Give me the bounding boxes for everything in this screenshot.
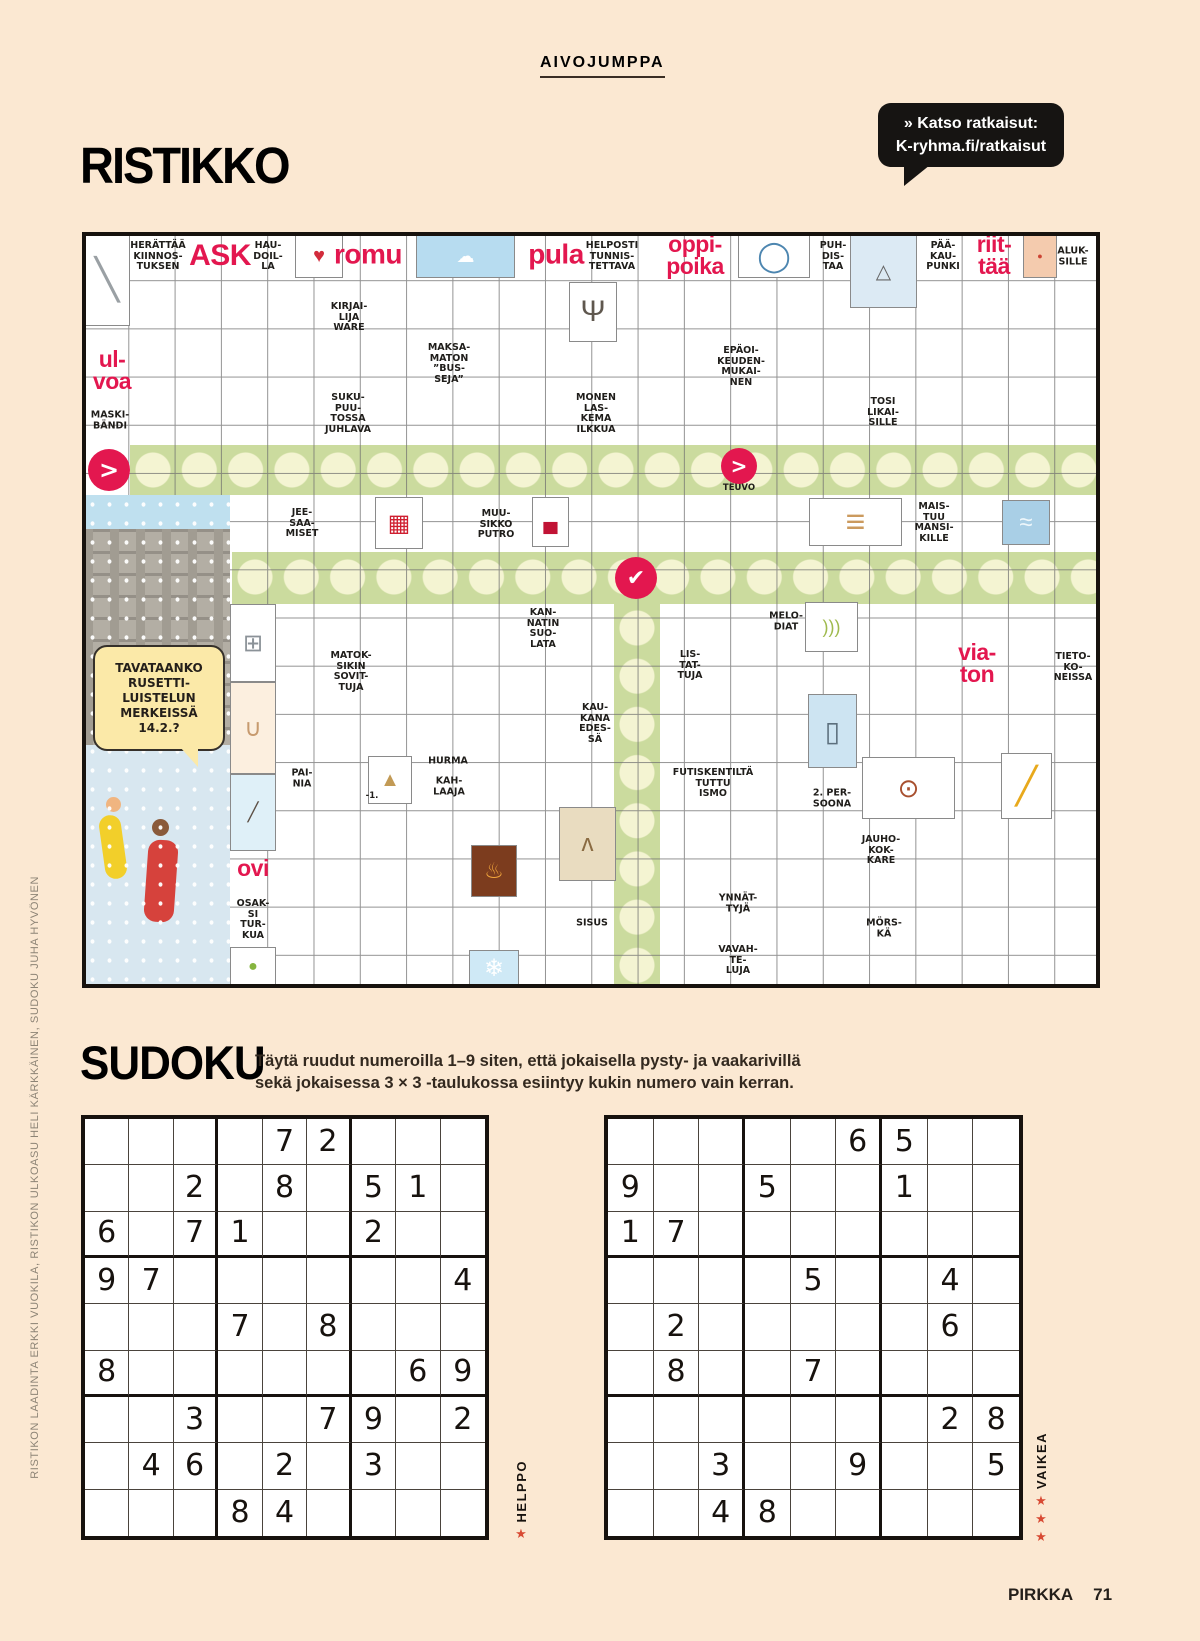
sea-image: ≈: [1002, 500, 1050, 545]
solutions-line1: » Katso ratkaisut:: [904, 112, 1038, 135]
sudoku-cell: [174, 1351, 218, 1397]
bananas-image: ))): [805, 602, 858, 652]
climbers-image: △: [850, 234, 917, 308]
fireplace-image: ♨: [471, 845, 517, 897]
sudoku-cell: [791, 1397, 837, 1443]
sudoku-cell: [352, 1258, 396, 1304]
sudoku-cell: [928, 1351, 974, 1397]
sudoku-cell: 2: [263, 1443, 307, 1489]
solutions-line2: K-ryhma.fi/ratkaisut: [896, 135, 1046, 158]
crossword-clue-red: ASK: [189, 242, 251, 271]
sudoku-cell: 9: [836, 1443, 882, 1489]
sudoku-cell: [608, 1397, 654, 1443]
crossword-clue: MELO- DIAT: [769, 611, 803, 632]
sudoku-cell: 2: [441, 1397, 485, 1443]
sudoku-instructions-line1: Täytä ruudut numeroilla 1–9 siten, että …: [255, 1050, 801, 1072]
sudoku-cell: 4: [129, 1443, 173, 1489]
sudoku-cell: [699, 1304, 745, 1350]
sudoku-cell: 5: [882, 1119, 928, 1165]
sudoku-cell: [441, 1490, 485, 1536]
tower-image: ▯: [808, 694, 857, 768]
sudoku-cell: [745, 1304, 791, 1350]
sudoku-cell: [928, 1119, 974, 1165]
sudoku-cell: 8: [745, 1490, 791, 1536]
sudoku-cell: 8: [263, 1165, 307, 1211]
sudoku-instructions-line2: sekä jokaisessa 3 × 3 -taulukossa esiint…: [255, 1072, 801, 1094]
crossword-clue: MAKSA- MATON ”BUS- SEJA”: [428, 343, 470, 386]
sudoku-cell: [699, 1258, 745, 1304]
crossword-clue: MATOK- SIKIN SOVIT- TUJA: [330, 651, 371, 694]
sudoku-cell: [218, 1397, 262, 1443]
sudoku-cell: [654, 1258, 700, 1304]
crossword-clue: HAU- DOIL- LA: [253, 241, 283, 273]
sudoku-cell: 1: [396, 1165, 440, 1211]
sudoku-cell: [608, 1258, 654, 1304]
sudoku-cell: 6: [396, 1351, 440, 1397]
sudoku-cell: [352, 1351, 396, 1397]
arrow-circle-teuvo-icon: >: [721, 448, 757, 484]
sudoku-cell: [791, 1490, 837, 1536]
sudoku-cell: [129, 1212, 173, 1258]
sudoku-cell: [882, 1351, 928, 1397]
difficulty-label-text: VAIKEA: [1035, 1432, 1048, 1489]
sudoku-cell: [745, 1258, 791, 1304]
sudoku-cell: [352, 1119, 396, 1165]
sudoku-title: SUDOKU: [80, 1040, 265, 1088]
sudoku-cell: [882, 1443, 928, 1489]
sudoku-cell: 8: [85, 1351, 129, 1397]
sudoku-cell: [263, 1212, 307, 1258]
crossword-clue-red: riit- tää: [977, 234, 1012, 278]
pencil-image: ╱: [1001, 753, 1052, 819]
sudoku-cell: 7: [307, 1397, 351, 1443]
sudoku-cell: [396, 1212, 440, 1258]
sudoku-cell: [836, 1212, 882, 1258]
sudoku-cell: 7: [654, 1212, 700, 1258]
crossword-clue: PAI- NIA: [292, 768, 313, 789]
sudoku-cell: [654, 1443, 700, 1489]
crossword-clue: KAH- LAAJA: [433, 776, 465, 797]
sudoku-cell: [882, 1490, 928, 1536]
sudoku-cell: [174, 1490, 218, 1536]
check-circle-icon: ✔: [615, 557, 657, 599]
sudoku-cell: [654, 1490, 700, 1536]
crossword-clue: JAUHO- KOK- KARE: [862, 835, 900, 867]
sudoku-cell: [352, 1490, 396, 1536]
scalpel-image: ╲: [84, 234, 130, 326]
sudoku-cell: 8: [218, 1490, 262, 1536]
sudoku-cell: [654, 1165, 700, 1211]
sudoku-cell: 7: [263, 1119, 307, 1165]
berry-scoop-image: ⊙: [862, 757, 955, 819]
sudoku-cell: 9: [608, 1165, 654, 1211]
sudoku-cell: [441, 1119, 485, 1165]
sudoku-cell: 2: [307, 1119, 351, 1165]
sudoku-cell: 2: [174, 1165, 218, 1211]
crossword-clue: OSAK- SI TUR- KUA: [237, 899, 270, 942]
sudoku-cell: [791, 1304, 837, 1350]
sudoku-cell: [836, 1397, 882, 1443]
sudoku-cell: [608, 1119, 654, 1165]
crossword-clue: SISUS: [576, 919, 608, 930]
crossword-clue: TOSI LIKAI- SILLE: [867, 397, 899, 429]
crossword-clue: MASKI- BÄNDI: [91, 410, 130, 431]
sudoku-cell: [882, 1258, 928, 1304]
crossword-clue: VAVAH- TE- LUJA: [718, 945, 757, 977]
crossword-clue-red: pula: [528, 242, 584, 269]
plate-image: ◯: [738, 234, 810, 278]
sudoku-cell: [85, 1304, 129, 1350]
sudoku-cell: [396, 1258, 440, 1304]
sudoku-cell: 2: [352, 1212, 396, 1258]
sudoku-cell: 7: [129, 1258, 173, 1304]
sudoku-cell: [129, 1490, 173, 1536]
sudoku-cell: 5: [973, 1443, 1019, 1489]
sudoku-cell: 5: [352, 1165, 396, 1211]
sudoku-cell: [85, 1443, 129, 1489]
answer-row-1: [130, 445, 1100, 495]
sudoku-cell: [608, 1351, 654, 1397]
arrow-circle-left-icon: >: [88, 449, 130, 491]
sudoku-cell: [218, 1443, 262, 1489]
sudoku-cell: 9: [352, 1397, 396, 1443]
toy-car-image: ▄: [532, 497, 569, 547]
sudoku-cell: 2: [928, 1397, 974, 1443]
crossword-clue: FUTISKENTILTÄ TUTTU ISMO: [673, 768, 753, 800]
sudoku-cell: [973, 1304, 1019, 1350]
sudoku-cell: [836, 1258, 882, 1304]
lynx-image: ʌ: [559, 807, 616, 881]
sudoku-cell: [973, 1212, 1019, 1258]
difficulty-label-text: HELPPO: [515, 1460, 528, 1522]
crossword-clue: MAIS- TUU MANSI- KILLE: [914, 502, 953, 545]
sudoku-cell: 9: [85, 1258, 129, 1304]
sudoku-grid-hard: 65951175426872839548: [604, 1115, 1023, 1540]
planks-image: ≡: [809, 498, 902, 546]
sudoku-cell: [307, 1351, 351, 1397]
sudoku-cell: 8: [307, 1304, 351, 1350]
sudoku-cell: 3: [352, 1443, 396, 1489]
sudoku-cell: [745, 1351, 791, 1397]
sudoku-cell: 9: [441, 1351, 485, 1397]
crossword-clue: KAN- NATIN SUO- LATA: [527, 608, 560, 651]
sudoku-cell: [882, 1212, 928, 1258]
sudoku-cell: 5: [791, 1258, 837, 1304]
difficulty-label-hard: VAIKEA★★★: [1026, 1405, 1056, 1543]
crossword-clue-red: ul- voa: [93, 349, 131, 393]
page-footer: PIRKKA 71: [1008, 1586, 1112, 1603]
crossword-clue: YNNÄT- TYJÄ: [719, 893, 757, 914]
basket-image: ▦: [375, 497, 423, 549]
sudoku-cell: 3: [699, 1443, 745, 1489]
sudoku-cell: [129, 1304, 173, 1350]
sudoku-cell: [973, 1258, 1019, 1304]
crossword-clue: KIRJAI- LIJA WARE: [331, 302, 368, 334]
sudoku-cell: [928, 1490, 974, 1536]
sudoku-cell: 1: [608, 1212, 654, 1258]
sudoku-cell: [973, 1119, 1019, 1165]
sudoku-cell: [218, 1165, 262, 1211]
sudoku-cell: [882, 1304, 928, 1350]
kitchen-scale-image: ⊞: [230, 604, 276, 682]
sudoku-cell: 6: [85, 1212, 129, 1258]
sudoku-cell: 7: [791, 1351, 837, 1397]
sudoku-cell: 7: [174, 1212, 218, 1258]
crossword-clue-red: romu: [334, 242, 402, 269]
sudoku-cell: [129, 1351, 173, 1397]
sudoku-cell: [85, 1119, 129, 1165]
sudoku-cell: [396, 1119, 440, 1165]
sudoku-cell: [307, 1258, 351, 1304]
crossword-clue: PÄÄ- KAU- PUNKI: [926, 241, 960, 273]
sudoku-cell: 4: [928, 1258, 974, 1304]
sudoku-cell: [307, 1443, 351, 1489]
sudoku-cell: [699, 1165, 745, 1211]
crossword-clue: HERÄTTÄÄ KIINNOS- TUKSEN: [130, 241, 186, 273]
sudoku-cell: [441, 1304, 485, 1350]
sudoku-cell: [973, 1165, 1019, 1211]
sudoku-cell: [396, 1443, 440, 1489]
sudoku-cell: [836, 1304, 882, 1350]
crossword-clue: EPÄOI- KEUDEN- MUKAI- NEN: [717, 346, 765, 389]
sudoku-cell: [129, 1397, 173, 1443]
sudoku-cell: [174, 1119, 218, 1165]
sudoku-cell: [973, 1351, 1019, 1397]
sudoku-cell: [654, 1397, 700, 1443]
sudoku-cell: 4: [441, 1258, 485, 1304]
sudoku-cell: [263, 1304, 307, 1350]
speech-bubble-tail: [904, 165, 930, 186]
crossword-clue: LIS- TAT- TUJA: [677, 650, 702, 682]
sudoku-cell: [745, 1443, 791, 1489]
crossword-clue-red: via- ton: [958, 642, 996, 686]
solutions-speech-bubble: » Katso ratkaisut: K-ryhma.fi/ratkaisut: [878, 103, 1064, 167]
sudoku-cell: [699, 1397, 745, 1443]
sudoku-cell: [836, 1351, 882, 1397]
sudoku-cell: [396, 1490, 440, 1536]
sudoku-cell: [699, 1212, 745, 1258]
sudoku-cell: 6: [174, 1443, 218, 1489]
sudoku-cell: [973, 1490, 1019, 1536]
sudoku-cell: [654, 1119, 700, 1165]
crossword-clue: MUU- SIKKO PUTRO: [478, 509, 515, 541]
clay-shooter-image: ☁: [416, 234, 515, 278]
crossword-grid: TAVATAANKO RUSETTI- LUISTELUN MERKEISSÄ …: [82, 232, 1100, 988]
sudoku-cell: [218, 1258, 262, 1304]
crossword-clue: KAU- KANA EDES- SÄ: [579, 703, 611, 746]
crossword-clue: PUH- DIS- TAA: [820, 241, 847, 273]
sudoku-cell: [307, 1165, 351, 1211]
sudoku-cell: 7: [218, 1304, 262, 1350]
crossword-clue: JEE- SAA- MISET: [286, 508, 319, 540]
crossword-clue: ALUK- SILLE: [1057, 246, 1088, 267]
sudoku-cell: [882, 1397, 928, 1443]
crossword-clue: SUKU- PUU- TOSSA JUHLAVA: [325, 393, 371, 436]
sudoku-cell: [85, 1397, 129, 1443]
sudoku-cell: [441, 1165, 485, 1211]
crossword-clue: HELPOSTI TUNNIS- TETTAVA: [586, 241, 638, 273]
credits-text: RISTIKON LAADINTA ERKKI VUOKILA, RISTIKO…: [30, 876, 41, 1479]
crossword-clue: TEUVO: [723, 484, 755, 494]
winter-scene-illustration: TAVATAANKO RUSETTI- LUISTELUN MERKEISSÄ …: [84, 495, 230, 986]
crossword-clue: MONEN LAS- KEMA ILKKUA: [576, 393, 616, 436]
sudoku-cell: 5: [745, 1165, 791, 1211]
difficulty-star-icon: ★: [1035, 1494, 1047, 1507]
sudoku-cell: [608, 1443, 654, 1489]
sudoku-cell: [396, 1304, 440, 1350]
difficulty-star-icon: ★: [515, 1527, 527, 1540]
sudoku-cell: [836, 1165, 882, 1211]
sudoku-cell: [441, 1443, 485, 1489]
difficulty-label-easy: HELPPO★: [506, 1428, 536, 1540]
sudoku-cell: 4: [699, 1490, 745, 1536]
ice-fisher-image: ╱: [230, 774, 276, 851]
sudoku-cell: 6: [928, 1304, 974, 1350]
sudoku-cell: [307, 1212, 351, 1258]
sudoku-cell: 8: [973, 1397, 1019, 1443]
sudoku-cell: [263, 1258, 307, 1304]
sudoku-cell: [791, 1212, 837, 1258]
sudoku-cell: [174, 1258, 218, 1304]
sudoku-cell: 4: [263, 1490, 307, 1536]
arm-image: ●: [1023, 234, 1057, 278]
sudoku-cell: [263, 1351, 307, 1397]
difficulty-star-icon: ★: [1035, 1512, 1047, 1525]
section-tag: AIVOJUMPPA: [540, 55, 665, 78]
sudoku-cell: [441, 1212, 485, 1258]
sudoku-cell: [352, 1304, 396, 1350]
sudoku-cell: [791, 1443, 837, 1489]
sudoku-cell: [85, 1165, 129, 1211]
crossword-clue-red: ovi: [237, 858, 269, 880]
winter-speech-bubble: TAVATAANKO RUSETTI- LUISTELUN MERKEISSÄ …: [93, 645, 225, 751]
sudoku-cell: [791, 1119, 837, 1165]
crossword-clue: HURMA: [428, 757, 468, 768]
winter-speech-bubble-tail: [180, 747, 198, 767]
sudoku-cell: [129, 1165, 173, 1211]
sudoku-instructions: Täytä ruudut numeroilla 1–9 siten, että …: [255, 1050, 801, 1095]
sudoku-cell: 3: [174, 1397, 218, 1443]
sudoku-cell: 1: [218, 1212, 262, 1258]
sudoku-cell: [396, 1397, 440, 1443]
sudoku-cell: [745, 1119, 791, 1165]
tree-image: Ψ: [569, 282, 617, 342]
sudoku-cell: [218, 1119, 262, 1165]
answer-row-2: [232, 552, 1100, 604]
sudoku-cell: [85, 1490, 129, 1536]
crossword-clue: MÖRS- KÄ: [866, 918, 902, 939]
sudoku-cell: 2: [654, 1304, 700, 1350]
crossword-clue: 2. PER- SOONA: [813, 788, 851, 809]
crossword-clue: TIETO- KO- NEISSA: [1054, 652, 1093, 684]
apple-hand-image: ●: [230, 947, 276, 986]
sudoku-cell: [745, 1397, 791, 1443]
sudoku-cell: [129, 1119, 173, 1165]
sudoku-cell: [218, 1351, 262, 1397]
sudoku-cell: [836, 1490, 882, 1536]
snowflake-image: ❄: [469, 950, 519, 986]
cradle-image: ∪: [230, 682, 276, 774]
crossword-clue: -1.: [366, 792, 379, 802]
sudoku-cell: [307, 1490, 351, 1536]
sudoku-cell: [608, 1490, 654, 1536]
ristikko-title: RISTIKKO: [80, 140, 289, 191]
sudoku-cell: [263, 1397, 307, 1443]
sudoku-cell: [928, 1165, 974, 1211]
sudoku-cell: [791, 1165, 837, 1211]
sudoku-cell: 8: [654, 1351, 700, 1397]
sudoku-cell: [699, 1351, 745, 1397]
sudoku-cell: [608, 1304, 654, 1350]
footer-page-number: 71: [1093, 1586, 1112, 1603]
sudoku-grid-easy: 7228516712974788693792462384: [81, 1115, 489, 1540]
sudoku-cell: 6: [836, 1119, 882, 1165]
footer-brand: PIRKKA: [1008, 1586, 1073, 1603]
answer-column: [614, 604, 660, 988]
credits-vertical: RISTIKON LAADINTA ERKKI VUOKILA, RISTIKO…: [30, 855, 41, 1500]
sudoku-cell: [928, 1212, 974, 1258]
sudoku-cell: [699, 1119, 745, 1165]
magazine-page: AIVOJUMPPA RISTIKKO » Katso ratkaisut: K…: [0, 0, 1200, 1641]
crossword-clue-red: oppi- poika: [666, 234, 724, 278]
sudoku-cell: [745, 1212, 791, 1258]
sudoku-cell: [174, 1304, 218, 1350]
sudoku-cell: 1: [882, 1165, 928, 1211]
difficulty-star-icon: ★: [1035, 1530, 1047, 1543]
sudoku-cell: [928, 1443, 974, 1489]
